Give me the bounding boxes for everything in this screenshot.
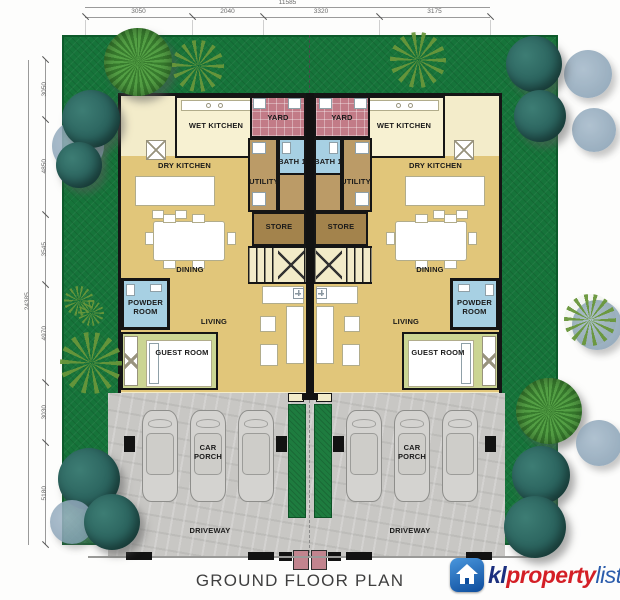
washer-icon <box>288 98 301 109</box>
room-label: GUEST ROOM <box>408 349 468 358</box>
room-label: DRY KITCHEN <box>121 162 248 171</box>
room-label: WET KITCHEN <box>365 122 443 131</box>
boundary-line <box>309 35 310 93</box>
car-icon <box>142 410 178 502</box>
floor-plan-image: 11585 3050 2040 3320 3175 24385 3050 485… <box>0 0 620 600</box>
sink-icon <box>206 103 211 108</box>
porch-pillar <box>276 436 287 452</box>
room-label: DINING <box>380 266 480 275</box>
armchair <box>344 316 360 332</box>
room-label: YARD <box>314 114 370 123</box>
chair <box>415 214 428 223</box>
room-label: LIVING <box>372 318 440 327</box>
toilet-icon <box>282 142 291 154</box>
car-icon <box>442 410 478 502</box>
stool <box>456 210 468 219</box>
dim-top-seg: 3175 <box>379 9 490 16</box>
porch-pillar <box>485 436 496 452</box>
ac-ledge <box>146 140 166 160</box>
sink-icon <box>396 103 401 108</box>
dim-top-seg: 3320 <box>263 9 379 16</box>
room-label: GUEST ROOM <box>152 349 212 358</box>
dim-line <box>45 60 46 545</box>
bush <box>504 496 566 558</box>
car-icon <box>238 410 274 502</box>
dining-table <box>395 221 467 261</box>
toilet-icon <box>485 284 494 296</box>
dim-ext <box>263 20 264 36</box>
stair-break <box>278 248 304 282</box>
kitchen-island <box>405 176 485 206</box>
sink-icon <box>408 103 413 108</box>
boundary-line <box>309 400 310 558</box>
dim-line <box>28 60 29 545</box>
side-table <box>293 288 304 299</box>
dim-line <box>85 17 490 18</box>
dim-top-seg: 2040 <box>192 9 263 16</box>
front-wall-segment <box>346 552 372 560</box>
watermark-property: property <box>506 562 595 588</box>
dim-left-seg: 3545 <box>42 231 49 267</box>
room-label: POWDER ROOM <box>451 299 498 316</box>
washer-icon <box>354 98 367 109</box>
room-label: STORE <box>252 223 306 232</box>
room-label: STORE <box>314 223 368 232</box>
room-label: CAR PORCH <box>392 444 432 461</box>
porch-pillar <box>124 436 135 452</box>
dim-ext <box>85 20 86 36</box>
side-table <box>316 288 327 299</box>
room-label: CAR PORCH <box>188 444 228 461</box>
toilet-icon <box>329 142 338 154</box>
dim-left-seg: 3030 <box>42 394 49 430</box>
room-label: DINING <box>140 266 240 275</box>
room-label: YARD <box>250 114 306 123</box>
laundry-sink-icon <box>355 192 369 206</box>
car-icon <box>346 410 382 502</box>
room-label: POWDER ROOM <box>122 299 169 316</box>
dim-top-total: 11585 <box>85 0 490 7</box>
basin-icon <box>458 284 470 292</box>
dim-left-seg: 5180 <box>42 475 49 511</box>
chair <box>163 214 176 223</box>
entry-step <box>316 393 332 402</box>
washer-icon <box>319 98 332 109</box>
toilet-icon <box>126 284 135 296</box>
hedge-strip <box>288 404 306 518</box>
chair <box>192 214 205 223</box>
round-tree <box>516 378 582 444</box>
chair <box>468 232 477 245</box>
plan-title: GROUND FLOOR PLAN <box>140 571 460 591</box>
dim-left-seg: 4970 <box>42 315 49 351</box>
chair <box>145 232 154 245</box>
palm-tree <box>60 332 122 394</box>
room-label: LIVING <box>180 318 248 327</box>
chair <box>227 232 236 245</box>
laundry-sink-icon <box>252 192 266 206</box>
room-label: DRY KITCHEN <box>372 162 499 171</box>
palm-tree <box>390 32 446 88</box>
tree-canopy <box>564 50 612 98</box>
dim-ext <box>379 20 380 36</box>
kitchen-counter <box>369 100 439 111</box>
bush <box>84 494 140 550</box>
gate-pillar <box>293 550 309 570</box>
dim-ext <box>490 20 491 36</box>
dining-table <box>153 221 225 261</box>
dim-left-seg: 4850 <box>42 148 49 184</box>
house-icon <box>450 558 484 592</box>
chair <box>444 214 457 223</box>
kitchen-island <box>135 176 215 206</box>
washer-icon <box>253 98 266 109</box>
entry-wall <box>302 393 318 400</box>
armchair <box>260 316 276 332</box>
wardrobe <box>124 336 138 386</box>
room-label: WET KITCHEN <box>177 122 255 131</box>
dim-ext <box>192 20 193 36</box>
tree-canopy <box>576 420 620 466</box>
front-wall-segment <box>248 552 274 560</box>
shrub <box>78 300 104 326</box>
room-label: DRIVEWAY <box>375 527 445 536</box>
bush <box>512 446 570 504</box>
front-wall-segment <box>126 552 152 560</box>
bush <box>514 90 566 142</box>
washer-icon <box>355 142 369 154</box>
room-label: BATH 1 <box>308 158 348 167</box>
watermark-kl: kl <box>488 562 506 588</box>
utility-corridor-left <box>278 175 306 212</box>
palm-tree <box>564 294 616 346</box>
wardrobe <box>482 336 496 386</box>
kitchen-counter <box>181 100 251 111</box>
dim-left-seg: 3050 <box>42 71 49 107</box>
round-tree <box>104 28 172 96</box>
room-label: UTILITY <box>338 178 374 187</box>
sofa <box>316 306 334 364</box>
dim-top-seg: 3050 <box>85 9 192 16</box>
bush <box>62 90 120 148</box>
stair-break <box>316 248 342 282</box>
bush <box>506 36 562 92</box>
coffee-table <box>260 344 278 366</box>
stool <box>175 210 187 219</box>
basin-icon <box>150 284 162 292</box>
room-label: DRIVEWAY <box>175 527 245 536</box>
washer-icon <box>252 142 266 154</box>
gate-pillar <box>311 550 327 570</box>
bush <box>56 142 102 188</box>
sofa <box>286 306 304 364</box>
watermark-text: klpropertylist <box>488 562 620 589</box>
tree-canopy <box>572 108 616 152</box>
palm-tree <box>172 40 224 92</box>
porch-pillar <box>333 436 344 452</box>
party-wall <box>306 93 314 395</box>
ac-ledge <box>454 140 474 160</box>
coffee-table <box>342 344 360 366</box>
room-label: UTILITY <box>246 178 282 187</box>
hedge-strip <box>314 404 332 518</box>
watermark: klpropertylist <box>450 558 620 592</box>
chair <box>386 232 395 245</box>
watermark-list: list <box>595 562 620 588</box>
sink-icon <box>218 103 223 108</box>
